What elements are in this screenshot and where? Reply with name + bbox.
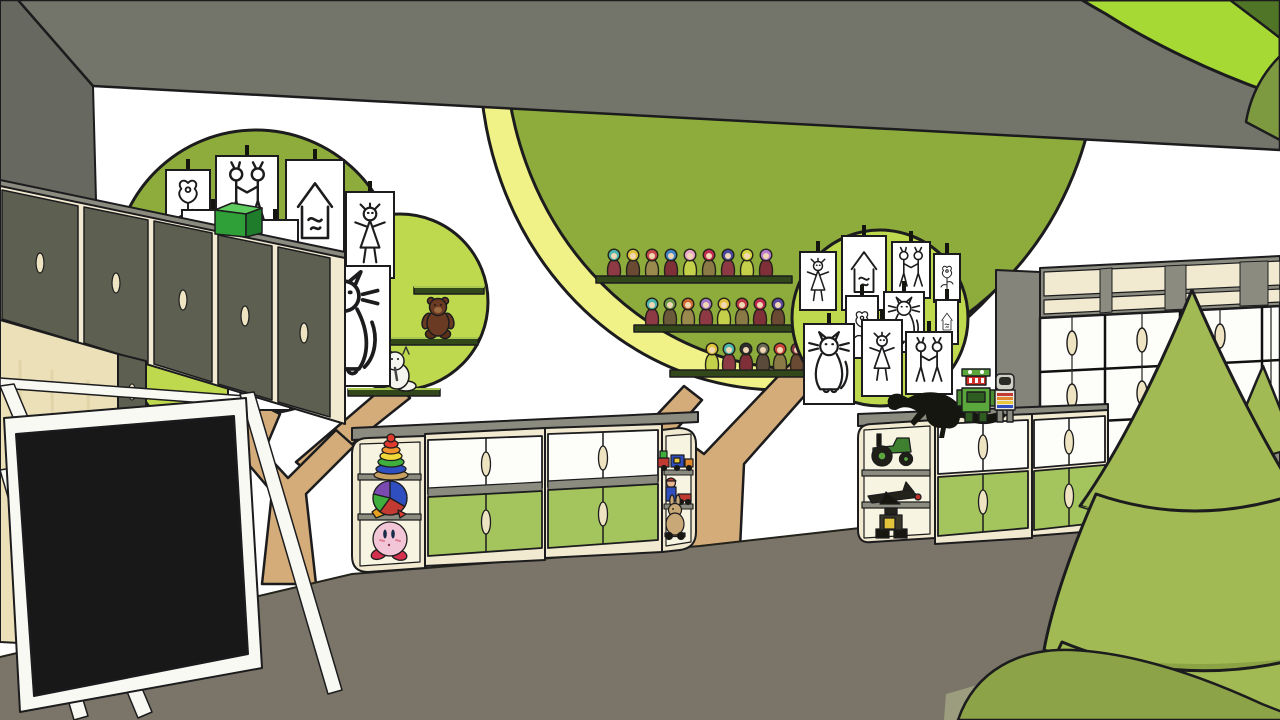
peg-doll — [706, 343, 719, 370]
door-handle — [482, 452, 491, 476]
peg-doll — [664, 298, 677, 325]
peg-doll — [646, 249, 659, 276]
drawing-frame-cat — [804, 313, 854, 404]
door-handle — [482, 510, 491, 534]
low-cabinet-center — [352, 412, 698, 572]
playroom-render — [0, 0, 1280, 720]
peg-doll — [682, 298, 695, 325]
door-handle — [979, 435, 988, 459]
door-handle — [979, 490, 988, 514]
drawing-frame-girl — [346, 181, 394, 278]
door-handle — [179, 290, 187, 310]
peg-doll — [760, 249, 773, 276]
peg-doll — [723, 343, 736, 370]
puzzle-ball — [372, 481, 407, 518]
drawing-frame-girl — [862, 309, 902, 396]
door-handle — [599, 502, 608, 526]
door-handle — [112, 273, 120, 293]
green-storage-box — [215, 203, 262, 237]
door-handle — [300, 323, 308, 343]
drawing-frame-girl — [800, 241, 836, 310]
peg-doll — [665, 249, 678, 276]
door-handle — [1065, 484, 1074, 508]
drawing-frame-couple — [892, 231, 930, 298]
peg-doll — [608, 249, 621, 276]
door-handle — [599, 446, 608, 470]
peg-doll — [754, 298, 767, 325]
peg-doll — [646, 298, 659, 325]
peg-doll — [736, 298, 749, 325]
peg-doll — [703, 249, 716, 276]
peg-doll — [700, 298, 713, 325]
peg-doll — [684, 249, 697, 276]
peg-doll — [718, 298, 731, 325]
tv-screen[interactable] — [16, 416, 248, 696]
door-handle — [241, 306, 249, 326]
peg-doll — [772, 298, 785, 325]
peg-doll — [741, 249, 754, 276]
peg-doll — [722, 249, 735, 276]
peg-doll-row-top — [608, 249, 773, 276]
drawing-frame-couple — [906, 321, 952, 394]
door-handle — [1065, 430, 1074, 454]
peg-doll — [757, 343, 770, 370]
peg-doll — [774, 343, 787, 370]
peg-doll — [740, 343, 753, 370]
door-handle — [36, 253, 44, 273]
peg-doll — [627, 249, 640, 276]
